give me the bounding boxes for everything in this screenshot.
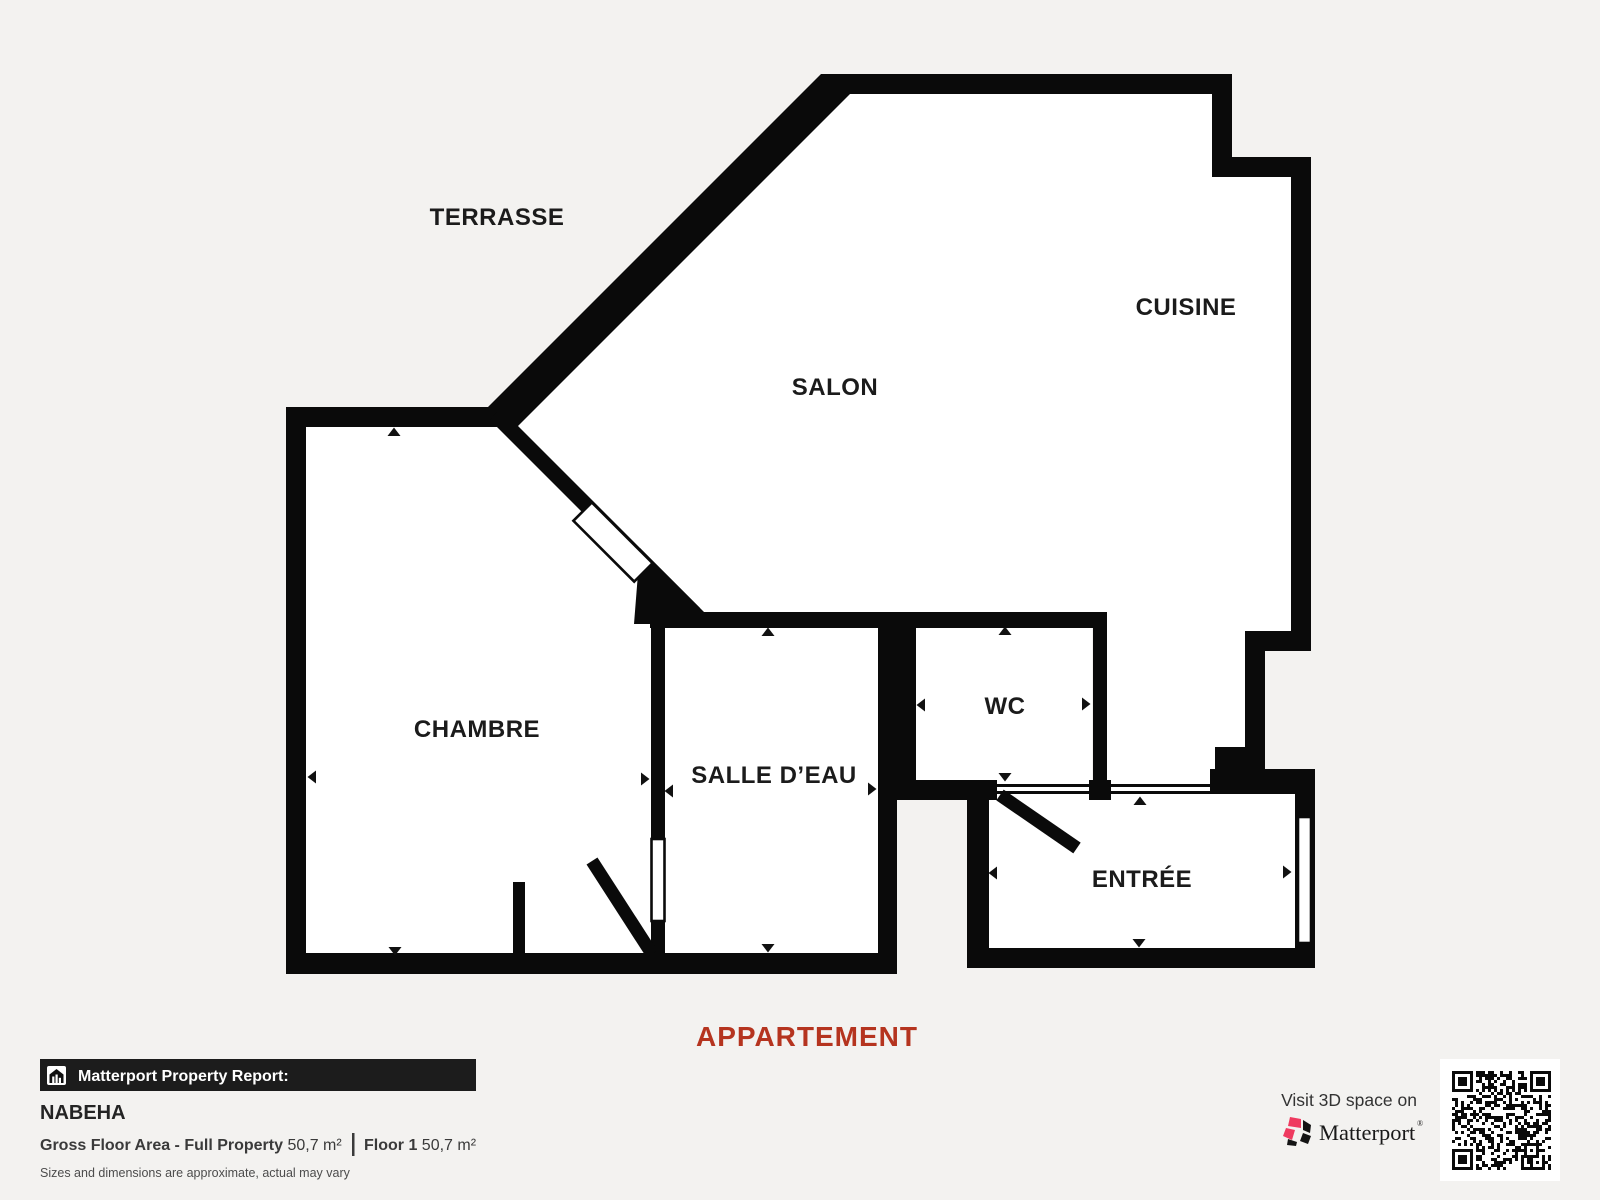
- svg-text:SALON: SALON: [792, 374, 879, 401]
- svg-text:TERRASSE: TERRASSE: [430, 204, 565, 231]
- svg-text:®: ®: [1417, 1119, 1423, 1128]
- svg-text:Matterport Property Report:: Matterport Property Report:: [78, 1068, 289, 1085]
- svg-text:NABEHA: NABEHA: [40, 1102, 126, 1124]
- svg-text:APPARTEMENT: APPARTEMENT: [696, 1021, 918, 1052]
- svg-text:Floor 1 50,7 m²: Floor 1 50,7 m²: [364, 1137, 477, 1154]
- svg-text:WC: WC: [985, 693, 1026, 720]
- svg-text:Gross Floor Area - Full Proper: Gross Floor Area - Full Property 50,7 m²: [40, 1137, 342, 1154]
- svg-text:Matterport: Matterport: [1319, 1120, 1416, 1145]
- svg-text:Visit 3D space on: Visit 3D space on: [1281, 1090, 1417, 1110]
- svg-text:CUISINE: CUISINE: [1136, 294, 1237, 321]
- svg-text:CHAMBRE: CHAMBRE: [414, 716, 540, 743]
- svg-text:Sizes and dimensions are appro: Sizes and dimensions are approximate, ac…: [40, 1166, 351, 1180]
- svg-text:SALLE D’EAU: SALLE D’EAU: [691, 762, 857, 789]
- svg-text:ENTRÉE: ENTRÉE: [1092, 865, 1192, 893]
